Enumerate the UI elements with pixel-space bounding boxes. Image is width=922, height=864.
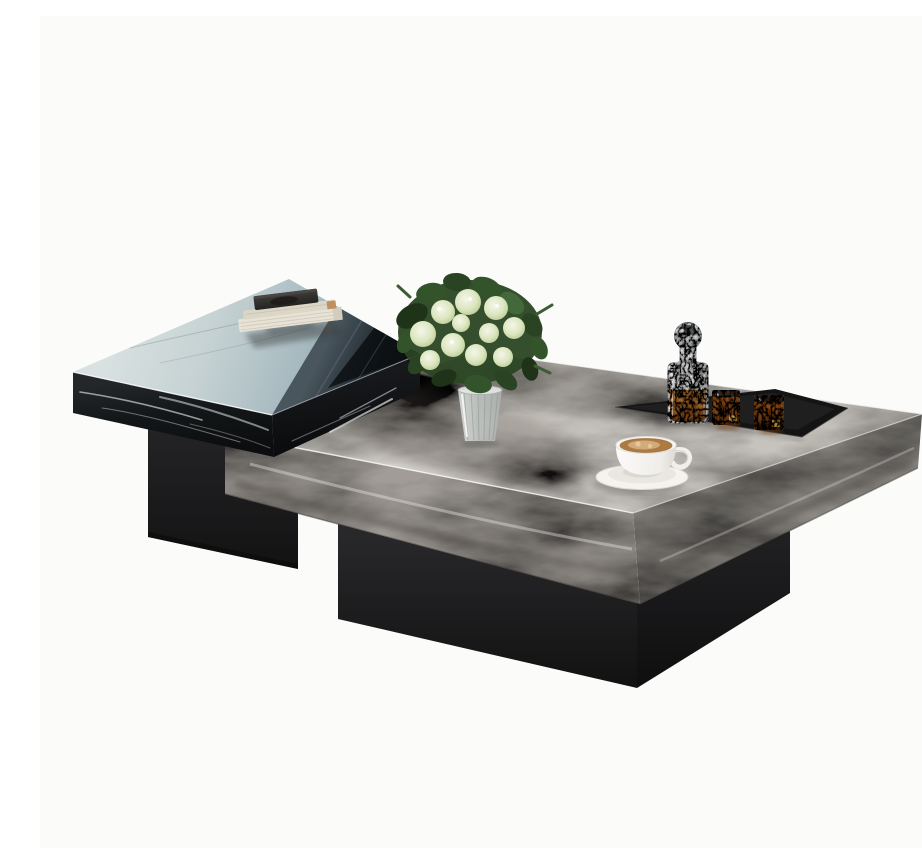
vase-reflection [466,443,494,463]
glass-2-glint [772,420,780,427]
whiskey-glass-2 [754,395,784,430]
product-illustration: Studio product photo on a white backgrou… [40,16,922,848]
whiskey-glass-1 [712,390,740,425]
product-photo: Studio product photo on a white backgrou… [40,16,922,848]
stopper-glint [680,329,684,333]
book-tan-accent [326,300,336,309]
latte-art-foam [628,441,660,450]
decanter-spirit [670,390,706,422]
glass-1-glint [729,415,737,422]
book-page-edge [332,307,343,321]
